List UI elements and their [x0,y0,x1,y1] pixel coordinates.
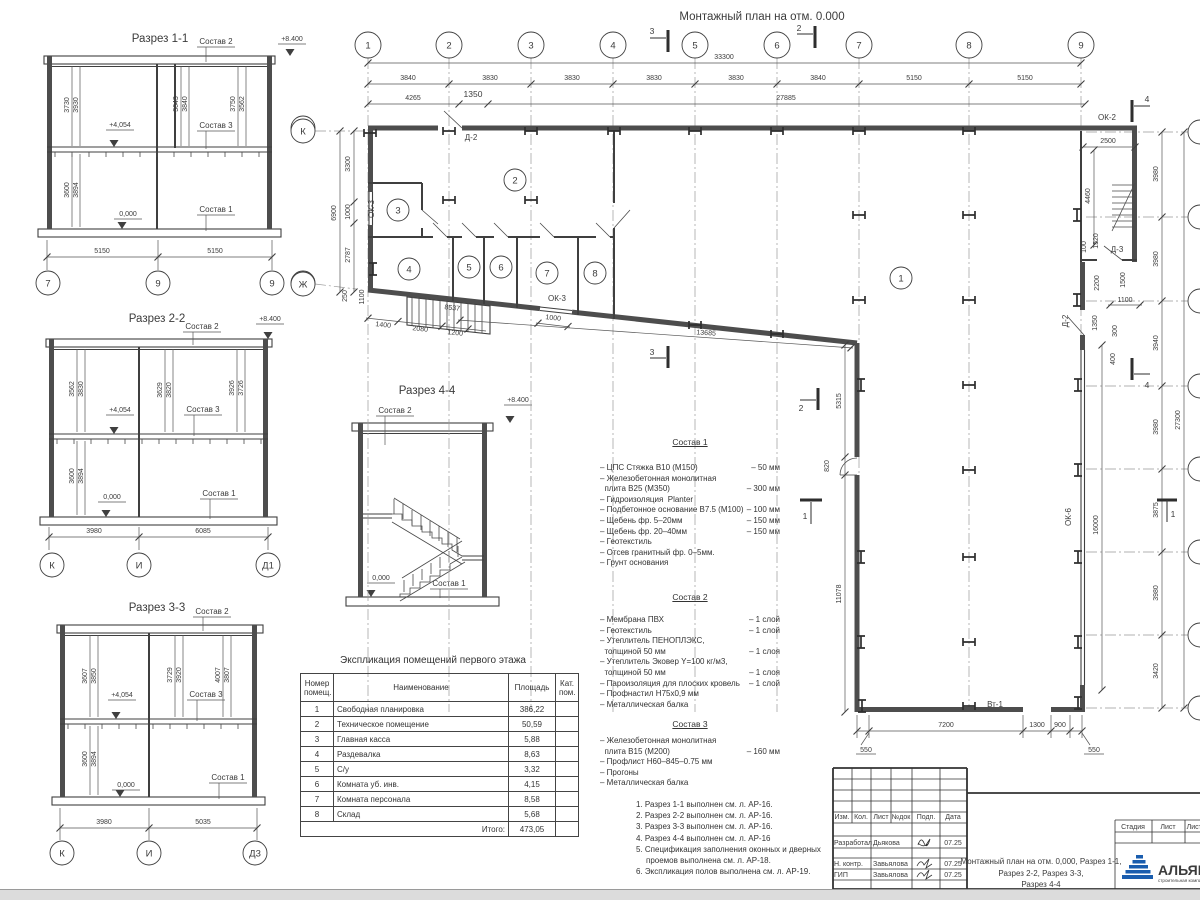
section-4-4-title: Разрез 4-4 [399,385,456,397]
dim: 5150 [207,248,223,255]
cell: Главная касса [334,732,509,747]
dim: 1350 [1092,315,1099,331]
cell: 6 [301,777,334,792]
dim: 3726 [238,380,245,396]
cell: Свободная планировка [334,702,509,717]
elevation-mark: +8.400 [507,397,529,404]
elevation-mark: +4,054 [109,407,131,414]
stamp-col-header: Листов [1187,824,1200,831]
list-item: – Щебень фр. 5–20мм– 150 мм [600,516,780,527]
dim: 3562 [69,381,76,397]
dim: 3420 [1153,663,1160,679]
grid-bubble: Д1 [262,561,274,572]
layer-label: Состав 3 [189,690,223,699]
dim: 1000 [545,314,561,323]
dim: 3730 [64,97,71,113]
room-schedule-title: Экспликация помещений первого этажа [300,655,566,666]
stamp-date: 07.25 [944,840,962,847]
stamp-col-header: Лист [1160,824,1176,831]
logo-text: АЛЬЯНС [1158,862,1200,878]
dim: 3830 [482,75,498,82]
dim: 3894 [78,468,85,484]
cell [556,702,579,717]
dim: 3300 [345,156,352,172]
grid-bubble: 9 [155,279,160,290]
logo-tagline: строительная компания [1158,878,1200,883]
list-item: – Геотекстиль– 1 слой [600,626,780,637]
dim: 820 [824,460,831,472]
sostav-1-title: Состав 1 [600,437,780,447]
grid-bubble: К [300,127,306,138]
dim: 4265 [405,95,421,102]
cell: 5,68 [509,807,556,822]
section-mark: 4 [1145,380,1150,390]
grid-bubble: 7 [856,41,861,52]
dim: 16000 [1093,515,1100,535]
grid-bubble: К [59,849,65,860]
stamp-col-header: Лист [873,814,889,821]
dim: 3830 [78,381,85,397]
list-item: – Прогоны [600,768,780,779]
section-mark: 1 [1171,509,1176,519]
dim: 1300 [1029,722,1045,729]
plan-bottom-dims: 550 7200 1300 900 550 [854,715,1105,754]
dim: 3629 [157,382,164,398]
dim: 27300 [1175,410,1182,430]
cell [556,822,579,837]
dim: 3920 [176,667,183,683]
grid-bubble: 1 [365,41,370,52]
plan-partitions [368,111,1135,475]
grid-bubble: К [49,561,55,572]
col-header: Площадь [509,674,556,702]
elevation-mark: 0,000 [103,494,121,501]
notes-list: 1. Разрез 1-1 выполнен см. л. АР-16. 2. … [636,799,832,877]
cell: Склад [334,807,509,822]
stamp-col-header: №док [892,814,911,821]
room-schedule-table: Номер помещ. Наименование Площадь Кат. п… [300,673,579,837]
dim: 100 [1081,241,1088,253]
signature [917,870,932,879]
cell: 386,22 [509,702,556,717]
cell [556,807,579,822]
layer-label: Состав 2 [378,406,412,415]
door-label: Д-2 [1061,314,1070,327]
table-row: 7Комната персонала8,58 [301,792,579,807]
dim: 300 [1112,325,1119,337]
dim: 3980 [1153,585,1160,601]
section-mark: 2 [797,23,802,33]
door-label: Д-3 [1111,245,1124,254]
dim: 900 [1054,722,1066,729]
elevation-mark: 0,000 [117,782,135,789]
dim: 550 [860,747,872,754]
list-item: – Металлическая балка [600,700,780,711]
dim: 3562 [239,96,246,112]
room-number: 4 [406,265,411,276]
dim: 33300 [714,54,734,61]
plan-top-dims: 33300 3840 3830 3830 3830 3830 3840 5150… [365,54,1089,108]
grid-bubble: 7 [45,279,50,290]
table-row: 4Раздевалка8,63 [301,747,579,762]
dim: 3940 [1153,335,1160,351]
cell: С/у [334,762,509,777]
stamp-doc-title: Монтажный план на отм. 0,000, Разрез 1-1… [961,857,1122,866]
signature [917,859,932,868]
list-item: – Мембрана ПВХ– 1 слой [600,615,780,626]
stamp-col-header: Подп. [917,814,936,821]
dim: 2500 [1100,138,1116,145]
layer-label: Состав 2 [185,322,219,331]
dim: 3930 [73,97,80,113]
cell: 50,59 [509,717,556,732]
sostav-2-block: Состав 2 – Мембрана ПВХ– 1 слой – Геотек… [600,592,780,710]
list-item: – Грунт основания [600,558,780,569]
list-item: – Утеплитель ПЕНОПЛЭКС, [600,636,780,647]
grid-bubble: Ж [299,280,308,291]
stamp-doc-title: Разрез 2-2, Разрез 3-3, [998,869,1083,878]
grid-bubble: 2 [446,41,451,52]
sheet-edge [0,890,1200,900]
stamp-date: 07.25 [944,872,962,879]
stamp-role: Разработал [834,839,872,847]
elevation-mark: +8.400 [259,316,281,323]
dim: 5150 [906,75,922,82]
dim: 3980 [1153,166,1160,182]
stamp-col-header: Стадия [1121,824,1145,831]
dim: 4007 [215,667,222,683]
cell: 1 [301,702,334,717]
section-1-1-title: Разрез 1-1 [132,33,188,45]
grid-bubble: 3 [528,41,533,52]
dim: 550 [1088,747,1100,754]
elevation-mark: 0,000 [119,211,137,218]
section-mark: 4 [1145,94,1150,104]
table-total-row: Итого:473,05 [301,822,579,837]
list-item: – ЦПС Стяжка В10 (М150)– 50 мм [600,463,780,474]
plan-right-wall-dims: 5315 820 11078 16000 [824,342,1106,716]
dim: 3850 [91,668,98,684]
layer-label: Состав 2 [199,37,233,46]
section-3-3: Разрез 3-3 3607 3850 3729 3920 4007 3807… [50,602,267,865]
dim: 3830 [646,75,662,82]
elevation-mark: +4,054 [109,122,131,129]
cell [556,792,579,807]
cell: 3,32 [509,762,556,777]
cell: 8,58 [509,792,556,807]
cell: Раздевалка [334,747,509,762]
cell [556,732,579,747]
table-row: 6Комната уб. инв.4,15 [301,777,579,792]
dim: 3643 [173,96,180,112]
note: 3. Разрез 3-3 выполнен см. л. АР-16. [636,821,832,832]
dim: 1520 [1093,233,1100,249]
elevation-mark: +4,054 [111,692,133,699]
list-item: – Профнастил Н75х0,9 мм [600,689,780,700]
door-label: Д-2 [465,133,478,142]
plan-right-outer-dims: 3980 3980 3940 3980 3875 3980 3420 27300 [1153,129,1188,712]
dim: 3894 [73,182,80,198]
sostav-3-block: Состав 3 – Железобетонная монолитная пли… [600,719,780,789]
cell [556,747,579,762]
table-row: 3Главная касса5,88 [301,732,579,747]
window-label: ОК-3 [367,199,376,218]
list-item: – Металлическая балка [600,778,780,789]
dim: 3729 [167,667,174,683]
dim: 250 [342,290,349,302]
col-header: Наименование [334,674,509,702]
section-1-1: Разрез 1-1 3730 3930 3643 3840 3750 3562… [36,33,315,295]
room-number: 3 [395,206,400,217]
dim: 5150 [94,248,110,255]
table-row: 2Техническое помещение50,59 [301,717,579,732]
cell: Комната персонала [334,792,509,807]
stamp-role: Н. контр. [834,861,863,868]
list-item: – Геотекстиль [600,537,780,548]
plan-slope-dims: 1400 2080 1200 8537 1000 13685 [365,304,855,351]
plan-left-dims: 6900 3300 1000 2787 250 1100 [331,128,366,305]
table-row: 5С/у3,32 [301,762,579,777]
room-number: 7 [544,269,549,280]
dim: 1350 [464,89,483,99]
grid-bubble: И [136,561,143,572]
total-value: 473,05 [509,822,556,837]
room-schedule: Экспликация помещений первого этажа Номе… [300,655,566,837]
window-label: ОК-2 [1098,113,1117,122]
dim: 3830 [728,75,744,82]
note: 2. Разрез 2-2 выполнен см. л. АР-16. [636,810,832,821]
section-4-4: Разрез 4-4 Состав 2 +8.400 0,000 Состав … [346,385,532,606]
list-item: толщиной 50 мм– 1 слоя [600,647,780,658]
dim: 3600 [82,751,89,767]
dim: 3600 [64,182,71,198]
layer-label: Состав 2 [195,607,229,616]
dim: 3840 [400,75,416,82]
dim: 3840 [182,96,189,112]
grid-bubble: 8 [966,41,971,52]
stamp-col-header: Дата [945,814,961,821]
cell: Техническое помещение [334,717,509,732]
total-label: Итого: [301,822,509,837]
table-row: 8Склад5,68 [301,807,579,822]
sostav-2-title: Состав 2 [600,592,780,602]
list-item: – Подбетонное основание В7.5 (М100)– 100… [600,505,780,516]
layer-label: Состав 1 [202,489,236,498]
dim: 3894 [91,751,98,767]
dim: 3600 [69,468,76,484]
cell [556,777,579,792]
room-number: 6 [498,263,503,274]
dim: 3926 [229,380,236,396]
sostav-3-title: Состав 3 [600,719,780,729]
grid-bubble: 4 [610,41,615,52]
table-row: 1Свободная планировка386,22 [301,702,579,717]
stamp-doc-title: Разрез 4-4 [1021,880,1061,889]
list-item: – Пароизоляция для плоских кровель– 1 сл… [600,679,780,690]
dim: 1500 [1120,272,1127,288]
section-mark: 3 [650,347,655,357]
cell: 4 [301,747,334,762]
dim: 3980 [96,819,112,826]
list-item: плита В15 (М200)– 160 мм [600,747,780,758]
list-item: – Железобетонная монолитная [600,474,780,485]
list-item: толщиной 50 мм– 1 слоя [600,668,780,679]
cell: Комната уб. инв. [334,777,509,792]
dim: 3807 [224,667,231,683]
list-item: – Железобетонная монолитная [600,736,780,747]
section-2-2-title: Разрез 2-2 [129,313,185,325]
list-item: – Гидроизоляция Planter [600,495,780,506]
dim: 3840 [810,75,826,82]
stamp-name: Завьялова [873,861,908,868]
stamp-col-header: Изм. [835,814,850,821]
note: 4. Разрез 4-4 выполнен см. л. АР-16 [636,833,832,844]
dim: 3875 [1153,502,1160,518]
list-item: – Отсев гранитный фр. 0–5мм. [600,548,780,559]
dim: 3820 [166,382,173,398]
plan-title: Монтажный план на отм. 0.000 [679,11,844,23]
layer-label: Состав 1 [211,773,245,782]
dim: 2200 [1094,275,1101,291]
cell: 5 [301,762,334,777]
dim: 3980 [1153,419,1160,435]
cell: 2 [301,717,334,732]
dim: 3980 [1153,251,1160,267]
dim: 3607 [82,668,89,684]
plan-room-bubbles: 1 2 3 4 5 6 7 8 [387,169,912,289]
dim: 8537 [444,304,460,313]
sostav-1-block: Состав 1 – ЦПС Стяжка В10 (М150)– 50 мм … [600,437,780,569]
company-logo: АЛЬЯНС строительная компания [1122,855,1200,883]
stamp-date: 07.25 [944,861,962,868]
dim: 27885 [776,95,796,102]
dim: 5035 [195,819,211,826]
section-mark: 1 [803,511,808,521]
grid-bubble: 6 [774,41,779,52]
note: 1. Разрез 1-1 выполнен см. л. АР-16. [636,799,832,810]
dim: 5150 [1017,75,1033,82]
dim: 2080 [412,325,428,334]
note: 5. Спецификация заполнения оконных и две… [636,844,832,866]
room-number: 1 [898,274,903,285]
gate-label: Вт-1 [987,700,1003,709]
cell [556,717,579,732]
dim: 6900 [331,205,338,221]
grid-bubble: Д3 [249,849,261,860]
stamp-name: Завьялова [873,872,908,879]
room-number: 8 [592,269,597,280]
window-label: ОК-3 [548,294,567,303]
list-item: плита В25 (М350)– 300 мм [600,484,780,495]
stamp-name: Дьякова [873,840,900,847]
section-2-2: Разрез 2-2 3562 3830 3629 3820 3926 3726… [40,313,284,577]
dim: 3830 [564,75,580,82]
dim: 1000 [345,204,352,220]
cell: 8,63 [509,747,556,762]
list-item: – Профлист Н60–845–0.75 мм [600,757,780,768]
grid-bubble: 5 [692,41,697,52]
layer-label: Состав 1 [199,205,233,214]
dim: 400 [1110,353,1117,365]
layer-label: Состав 3 [199,121,233,130]
grid-bubble: 9 [1078,41,1083,52]
elevation-mark: +8.400 [281,36,303,43]
cell: 8 [301,807,334,822]
section-3-3-title: Разрез 3-3 [129,602,185,614]
dim: 1400 [375,321,391,330]
elevation-mark: 0,000 [372,575,390,582]
grid-bubble: И [146,849,153,860]
layer-label: Состав 3 [186,405,220,414]
dim: 11078 [836,584,843,603]
title-block: Изм. Кол. Лист №док Подп. Дата Разработа… [833,768,1200,889]
dim: 1100 [1117,297,1132,304]
dim: 7200 [938,722,954,729]
section-mark: 3 [650,26,655,36]
dim: 1100 [359,289,366,304]
cell: 3 [301,732,334,747]
dim: 3980 [86,528,102,535]
room-number: 2 [512,176,517,187]
section-mark: 2 [799,403,804,413]
list-item: – Утеплитель Эковер Y=100 кг/м3, [600,657,780,668]
col-header: Номер помещ. [301,674,334,702]
list-item: – Щебень фр. 20–40мм– 150 мм [600,527,780,538]
room-number: 5 [466,263,471,274]
cell [556,762,579,777]
cell: 5,88 [509,732,556,747]
dim: 3750 [230,96,237,112]
dim: 6085 [195,528,211,535]
col-header: Кат. пом. [556,674,579,702]
stamp-role: ГИП [834,872,848,879]
note: 6. Экспликация полов выполнена см. л. АР… [636,866,832,877]
dim: 4460 [1085,188,1092,204]
dim: 1200 [447,329,463,338]
window-label: ОК-6 [1064,507,1073,526]
dim: 5315 [836,393,843,409]
grid-bubble: 9 [269,279,274,290]
cell: 4,15 [509,777,556,792]
dim: 2787 [345,247,352,263]
signature [918,839,930,846]
dim: 13685 [696,329,716,337]
stamp-col-header: Кол. [854,814,868,821]
cell: 7 [301,792,334,807]
